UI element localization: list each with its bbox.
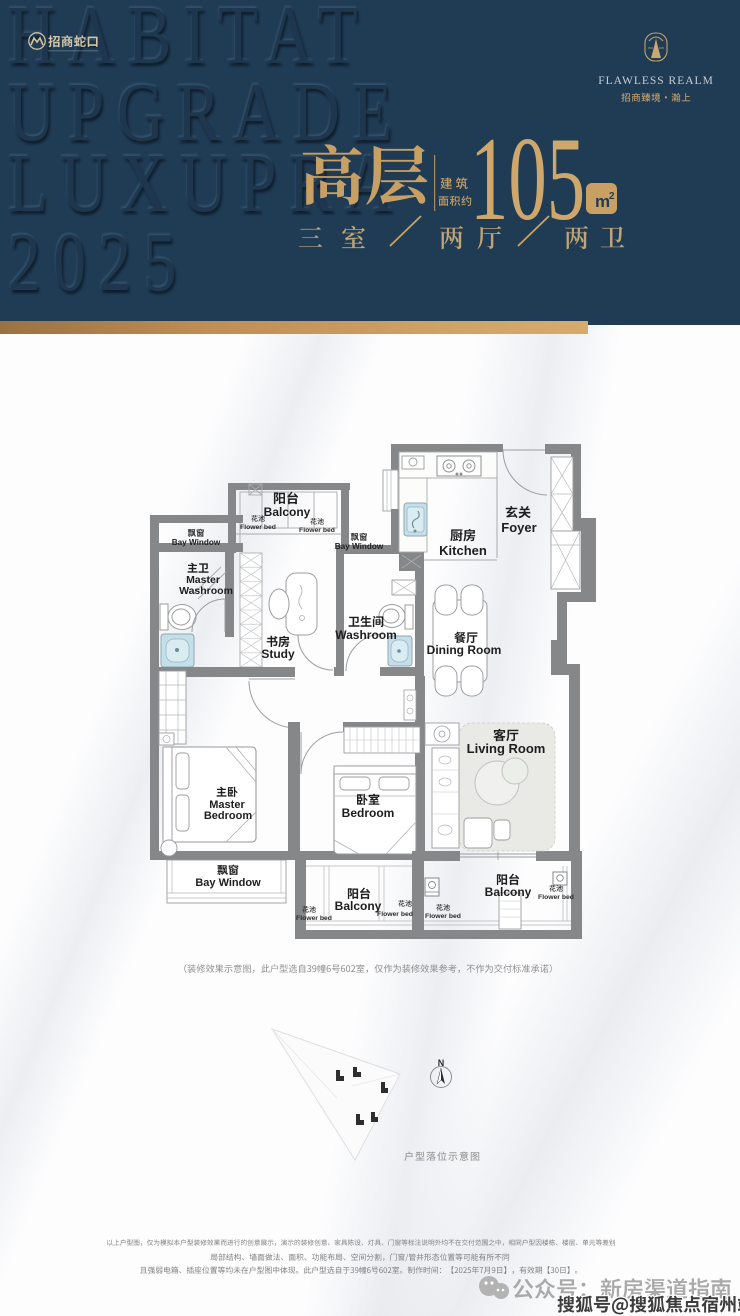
svg-text:Washroom: Washroom bbox=[179, 585, 233, 597]
svg-text:Balcony: Balcony bbox=[335, 899, 382, 913]
svg-text:N: N bbox=[438, 1058, 445, 1068]
svg-text:Bedroom: Bedroom bbox=[342, 806, 395, 820]
svg-text:Bay Window: Bay Window bbox=[172, 538, 221, 547]
svg-text:Flower bed: Flower bed bbox=[425, 913, 461, 920]
svg-text:Balcony: Balcony bbox=[264, 505, 311, 519]
svg-text:Flower bed: Flower bed bbox=[377, 911, 413, 918]
svg-text:Bay Window: Bay Window bbox=[195, 877, 261, 889]
svg-text:Foyer: Foyer bbox=[501, 520, 536, 535]
svg-text:Kitchen: Kitchen bbox=[439, 543, 487, 558]
svg-text:Balcony: Balcony bbox=[485, 885, 532, 899]
svg-text:Bay Window: Bay Window bbox=[335, 542, 384, 551]
svg-text:Flower bed: Flower bed bbox=[296, 915, 332, 922]
svg-text:Flower bed: Flower bed bbox=[240, 524, 276, 531]
svg-text:Dining Room: Dining Room bbox=[427, 643, 502, 657]
svg-text:Study: Study bbox=[261, 647, 295, 661]
svg-text:Washroom: Washroom bbox=[335, 628, 397, 642]
svg-text:Bedroom: Bedroom bbox=[204, 810, 253, 822]
svg-text:Flower bed: Flower bed bbox=[538, 894, 574, 901]
svg-text:Flower bed: Flower bed bbox=[299, 527, 335, 534]
svg-text:Living Room: Living Room bbox=[467, 741, 546, 756]
